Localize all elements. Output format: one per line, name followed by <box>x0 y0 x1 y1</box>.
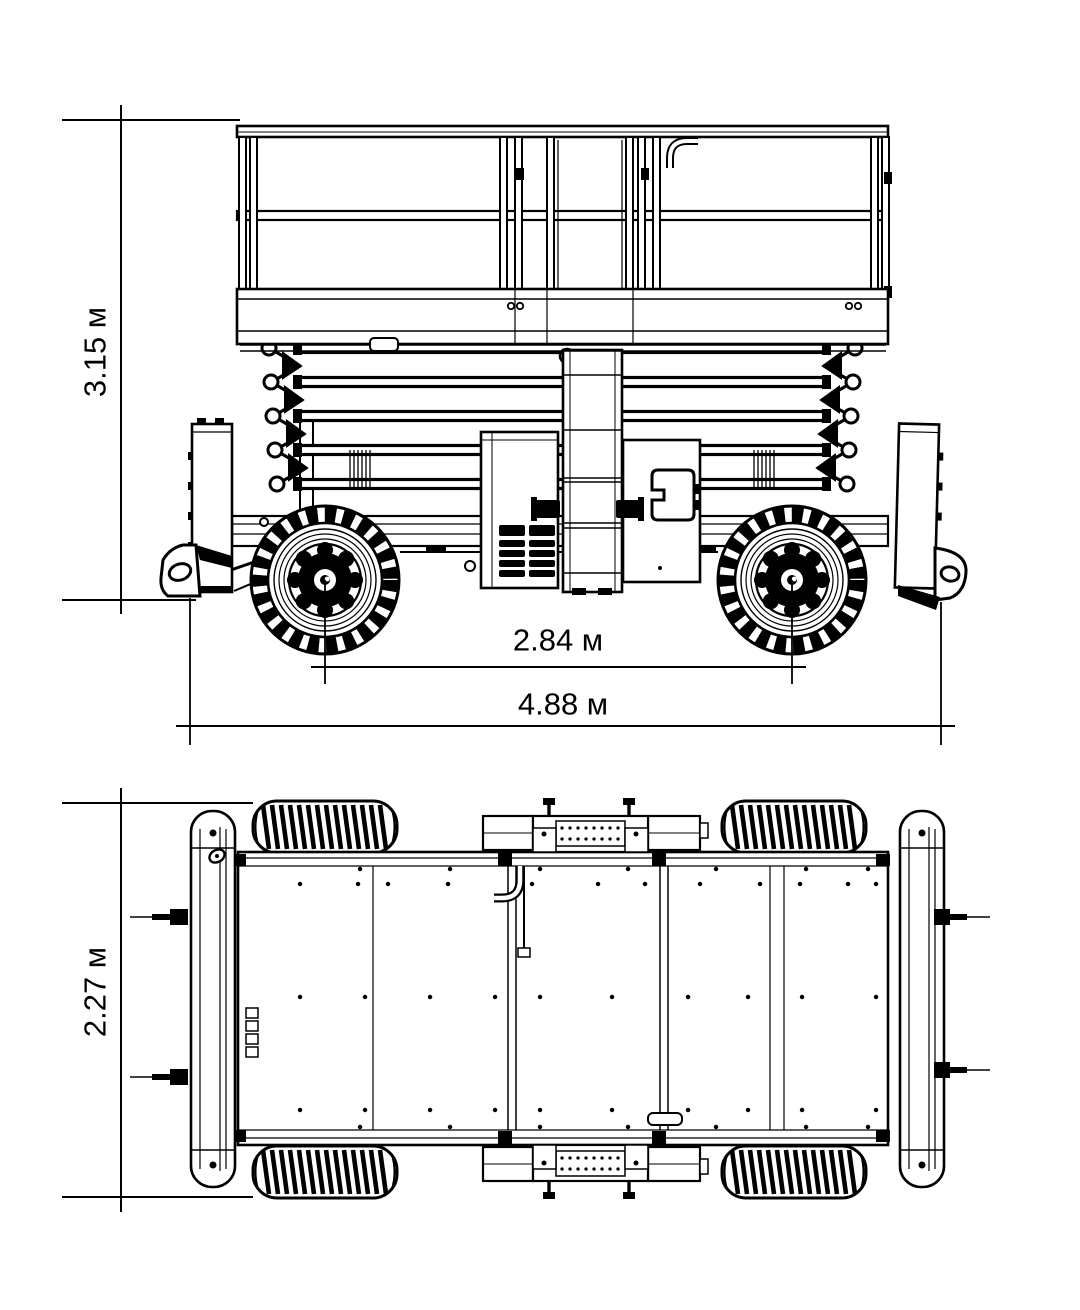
hydraulic-box <box>616 440 700 582</box>
tire-rear-left <box>722 801 866 853</box>
tire-rear-right <box>722 1146 866 1198</box>
panel-bolts-front <box>130 909 188 1085</box>
entry-step-bottom <box>483 1145 708 1198</box>
deck-plan <box>232 852 890 1145</box>
entry-step-top <box>483 799 708 852</box>
platform-handle <box>670 141 698 168</box>
scissor-lift-dimension-drawing: 3.15 м <box>0 0 1080 1310</box>
deck-handle <box>648 1113 682 1125</box>
tire-front-left <box>253 801 397 853</box>
end-panel-rear-plan <box>900 811 990 1187</box>
end-panel-front-plan <box>130 811 235 1187</box>
width-dimension-label: 2.27 м <box>78 947 113 1037</box>
wheelbase-dimension-label: 2.84 м <box>513 623 603 658</box>
tire-front-right <box>253 1146 397 1198</box>
length-dimension-label: 4.88 м <box>518 687 608 722</box>
engine-box <box>481 432 560 588</box>
work-platform <box>237 126 892 351</box>
mid-guardrail <box>237 211 888 220</box>
lift-mast <box>563 350 622 595</box>
height-dimension-label: 3.15 м <box>78 307 113 397</box>
plan-view: 2.27 м <box>62 788 990 1212</box>
technical-drawing-canvas: 3.15 м <box>0 0 1080 1310</box>
side-view: 3.15 м <box>62 105 966 745</box>
platform-deck <box>237 289 888 344</box>
